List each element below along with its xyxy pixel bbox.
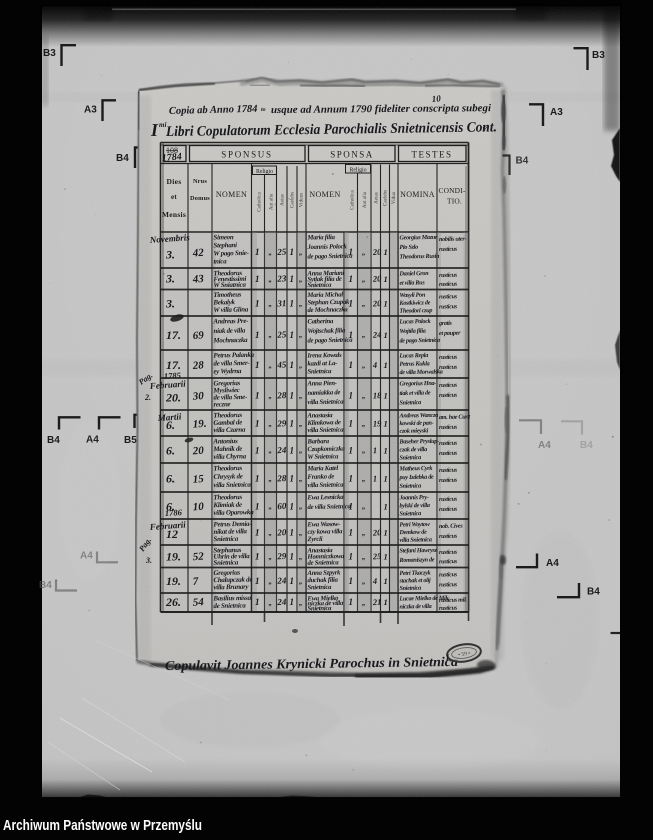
svg-text:Archiwum Państwowe w Przemyślu: Archiwum Państwowe w Przemyślu [3,817,202,834]
